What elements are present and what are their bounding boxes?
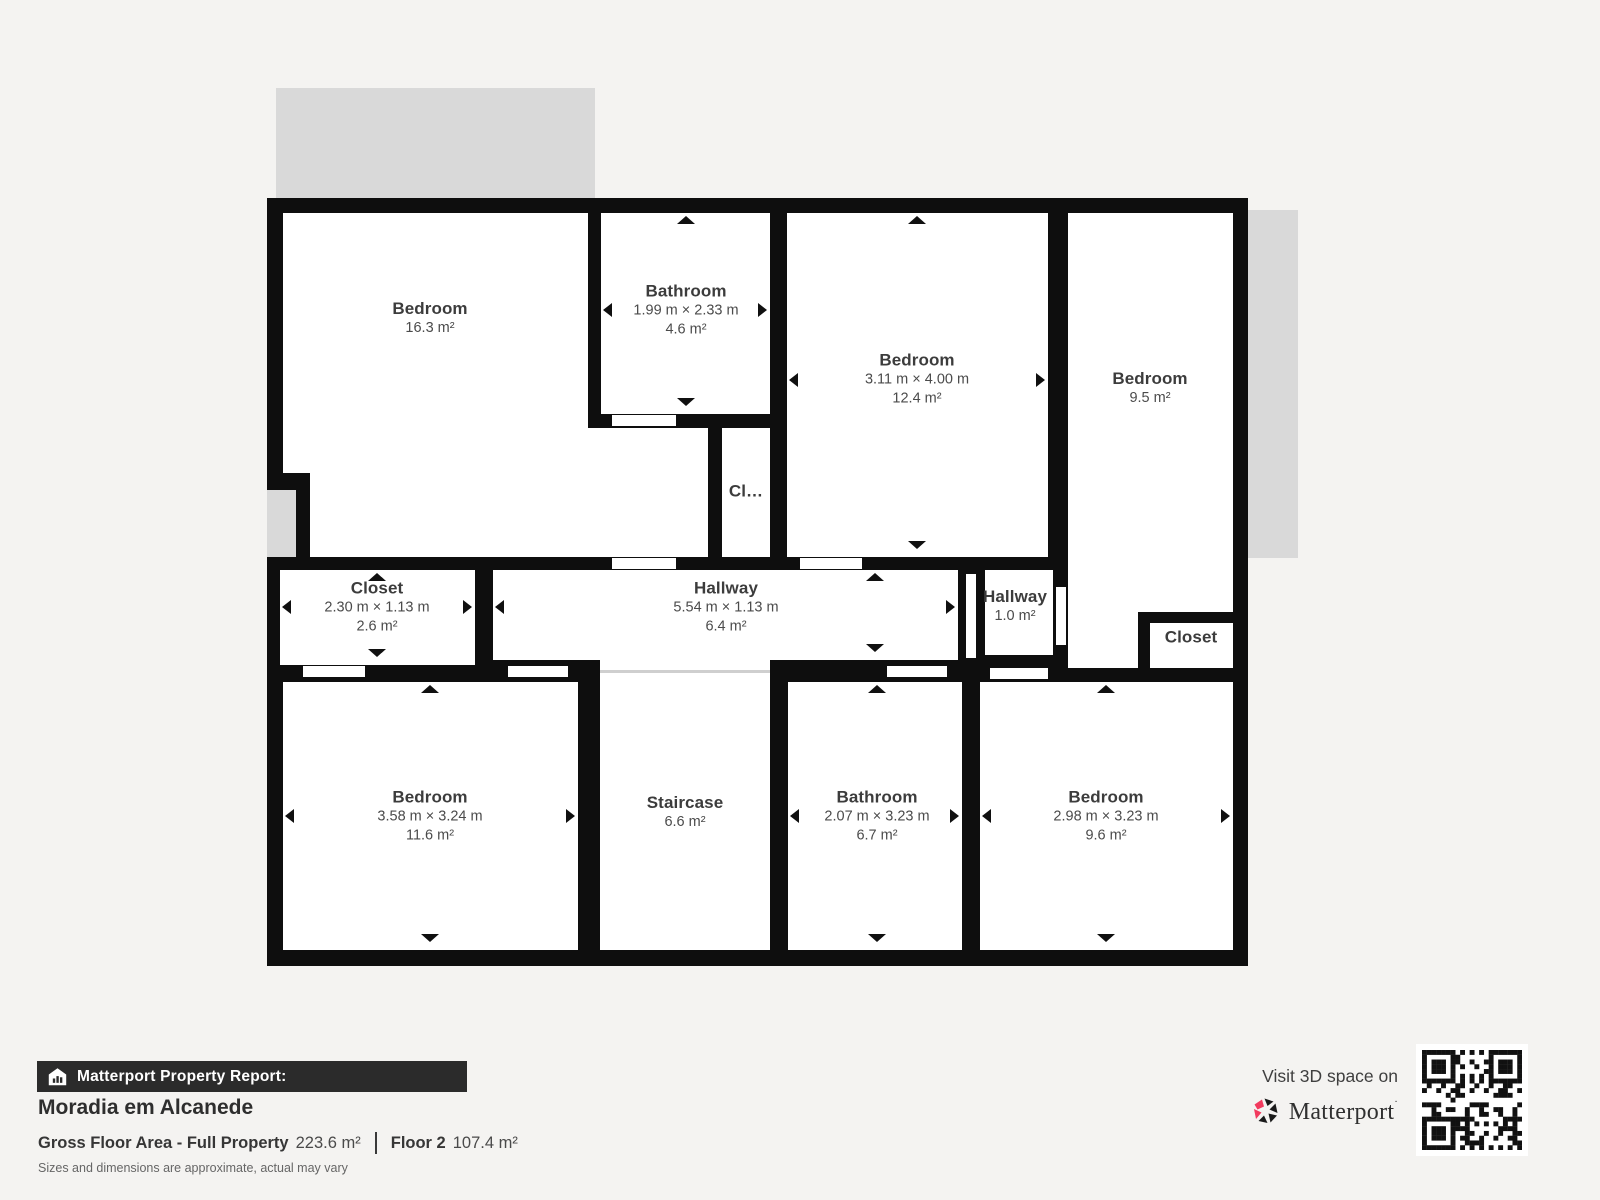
- dim-arrow-up-icon: [908, 216, 926, 224]
- dim-arrow-right-icon: [950, 809, 959, 823]
- dim-arrow-left-icon: [285, 809, 294, 823]
- room-area: 11.6 m²: [377, 827, 482, 846]
- stats-divider: [375, 1132, 377, 1154]
- dim-arrow-left-icon: [495, 600, 504, 614]
- door-opening: [1056, 587, 1066, 645]
- door-opening: [303, 666, 365, 677]
- room-name: Closet: [1165, 627, 1218, 648]
- room-name: Closet: [324, 578, 429, 599]
- qr-code: [1416, 1044, 1528, 1156]
- room-dims: 2.98 m × 3.23 m: [1053, 808, 1158, 827]
- dim-arrow-right-icon: [758, 303, 767, 317]
- room-name: Hallway: [673, 578, 778, 599]
- room-area: 16.3 m²: [392, 319, 467, 338]
- dim-arrow-left-icon: [982, 809, 991, 823]
- room-area: 9.6 m²: [1053, 827, 1158, 846]
- property-name: Moradia em Alcanede: [38, 1096, 253, 1120]
- staircase-threshold-line: [600, 670, 770, 673]
- matterport-brand: Matterport·: [1140, 1096, 1398, 1126]
- room-name: Bathroom: [824, 787, 929, 808]
- dim-arrow-right-icon: [1221, 809, 1230, 823]
- dim-arrow-up-icon: [677, 216, 695, 224]
- dim-arrow-down-icon: [868, 934, 886, 942]
- door-opening: [990, 668, 1048, 679]
- room-label-closet-small: Cl…: [729, 481, 763, 502]
- dim-arrow-left-icon: [603, 303, 612, 317]
- floor-plan-page: Bedroom 16.3 m² Bathroom 1.99 m × 2.33 m…: [0, 0, 1600, 1200]
- dim-arrow-down-icon: [908, 541, 926, 549]
- room-label-bedroom-top-left: Bedroom 16.3 m²: [392, 298, 467, 338]
- report-title: Matterport Property Report:: [77, 1068, 287, 1086]
- recess-left: [267, 490, 296, 557]
- room-bedroom-top-left: [283, 213, 588, 473]
- room-area: 1.0 m²: [983, 607, 1047, 626]
- room-name: Staircase: [647, 792, 724, 813]
- room-area: 2.6 m²: [324, 618, 429, 637]
- door-opening: [800, 558, 862, 569]
- room-label-bedroom-middle: Bedroom 3.11 m × 4.00 m 12.4 m²: [865, 350, 969, 409]
- room-name: Bedroom: [1112, 368, 1187, 389]
- dim-arrow-left-icon: [789, 373, 798, 387]
- door-opening: [612, 558, 676, 569]
- gfa-label: Gross Floor Area - Full Property: [38, 1134, 289, 1153]
- room-area: 4.6 m²: [633, 321, 738, 340]
- room-area: 6.6 m²: [647, 813, 724, 832]
- dim-arrow-right-icon: [566, 809, 575, 823]
- dim-arrow-up-icon: [866, 573, 884, 581]
- visit-3d-label: Visit 3D space on: [1140, 1066, 1398, 1087]
- room-dims: 2.30 m × 1.13 m: [324, 599, 429, 618]
- room-label-bathroom-bottom: Bathroom 2.07 m × 3.23 m 6.7 m²: [824, 787, 929, 846]
- matterport-logo-icon: [1251, 1096, 1281, 1126]
- floor-label: Floor 2: [391, 1134, 446, 1153]
- room-label-bathroom-top: Bathroom 1.99 m × 2.33 m 4.6 m²: [633, 281, 738, 340]
- dim-arrow-up-icon: [868, 685, 886, 693]
- disclaimer-text: Sizes and dimensions are approximate, ac…: [38, 1161, 348, 1175]
- room-name: Bathroom: [633, 281, 738, 302]
- room-label-bedroom-bottom-left: Bedroom 3.58 m × 3.24 m 11.6 m²: [377, 787, 482, 846]
- room-label-staircase: Staircase 6.6 m²: [647, 792, 724, 832]
- room-area: 9.5 m²: [1112, 389, 1187, 408]
- room-label-bedroom-right: Bedroom 9.5 m²: [1112, 368, 1187, 408]
- room-name: Bedroom: [1053, 787, 1158, 808]
- room-name: Bedroom: [377, 787, 482, 808]
- room-name: Cl…: [729, 481, 763, 502]
- terrace-top: [276, 88, 595, 198]
- house-report-icon: [48, 1067, 67, 1086]
- gfa-value: 223.6 m²: [296, 1134, 361, 1153]
- room-label-hallway-small: Hallway 1.0 m²: [983, 586, 1047, 626]
- room-name: Hallway: [983, 586, 1047, 607]
- room-bedroom-top-left: [588, 428, 708, 557]
- room-label-bedroom-bottom-right: Bedroom 2.98 m × 3.23 m 9.6 m²: [1053, 787, 1158, 846]
- room-dims: 2.07 m × 3.23 m: [824, 808, 929, 827]
- door-opening: [887, 666, 947, 677]
- floor-value: 107.4 m²: [453, 1134, 518, 1153]
- room-dims: 5.54 m × 1.13 m: [673, 599, 778, 618]
- room-area: 12.4 m²: [865, 390, 969, 409]
- dim-arrow-down-icon: [421, 934, 439, 942]
- dim-arrow-right-icon: [463, 600, 472, 614]
- dim-arrow-up-icon: [1097, 685, 1115, 693]
- dim-arrow-left-icon: [282, 600, 291, 614]
- dim-arrow-right-icon: [946, 600, 955, 614]
- area-stats: Gross Floor Area - Full Property 223.6 m…: [38, 1132, 518, 1154]
- visit-3d-block: Visit 3D space on Matterport·: [1140, 1066, 1398, 1126]
- dim-arrow-right-icon: [1036, 373, 1045, 387]
- door-opening: [508, 666, 568, 677]
- room-name: Bedroom: [865, 350, 969, 371]
- dim-arrow-down-icon: [677, 398, 695, 406]
- dim-arrow-down-icon: [866, 644, 884, 652]
- room-label-closet-right: Closet: [1165, 627, 1218, 648]
- room-bedroom-top-left: [310, 473, 588, 557]
- dim-arrow-down-icon: [368, 649, 386, 657]
- room-area: 6.4 m²: [673, 618, 778, 637]
- door-opening: [966, 574, 976, 658]
- dim-arrow-up-icon: [421, 685, 439, 693]
- room-dims: 1.99 m × 2.33 m: [633, 302, 738, 321]
- room-label-hallway-main: Hallway 5.54 m × 1.13 m 6.4 m²: [673, 578, 778, 637]
- dim-arrow-down-icon: [1097, 934, 1115, 942]
- room-label-closet-left: Closet 2.30 m × 1.13 m 2.6 m²: [324, 578, 429, 637]
- room-bedroom-right: [1068, 213, 1233, 612]
- dim-arrow-left-icon: [790, 809, 799, 823]
- matterport-wordmark: Matterport·: [1289, 1097, 1398, 1126]
- report-title-bar: Matterport Property Report:: [37, 1061, 467, 1092]
- room-dims: 3.58 m × 3.24 m: [377, 808, 482, 827]
- room-name: Bedroom: [392, 298, 467, 319]
- room-dims: 3.11 m × 4.00 m: [865, 371, 969, 390]
- room-bedroom-right: [1068, 612, 1138, 668]
- door-opening: [612, 415, 676, 426]
- room-area: 6.7 m²: [824, 827, 929, 846]
- terrace-right: [1248, 210, 1298, 558]
